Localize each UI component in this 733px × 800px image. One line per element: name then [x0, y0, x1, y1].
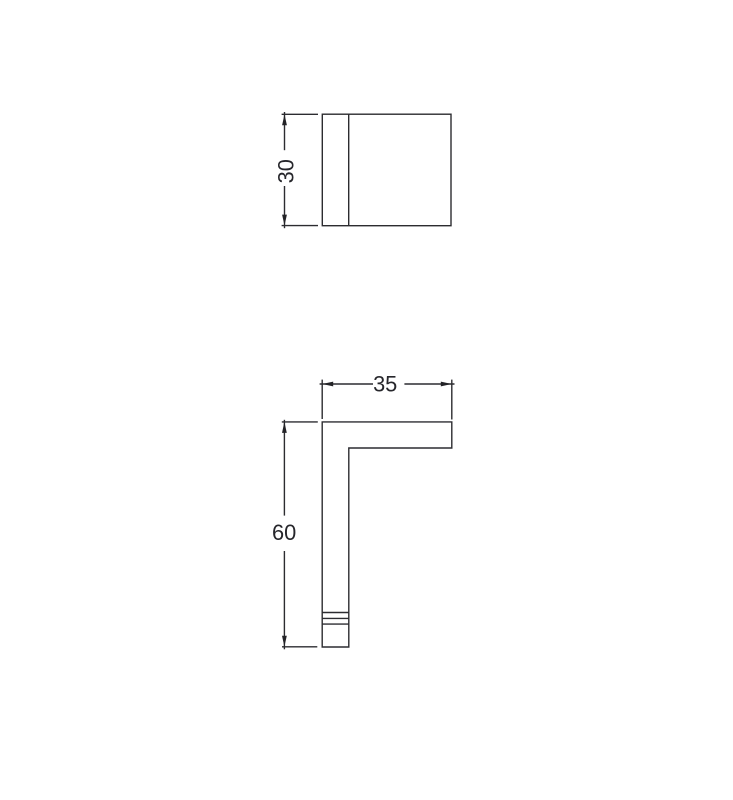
svg-text:35: 35	[373, 372, 397, 397]
svg-text:60: 60	[272, 520, 296, 545]
svg-text:30: 30	[274, 159, 299, 183]
